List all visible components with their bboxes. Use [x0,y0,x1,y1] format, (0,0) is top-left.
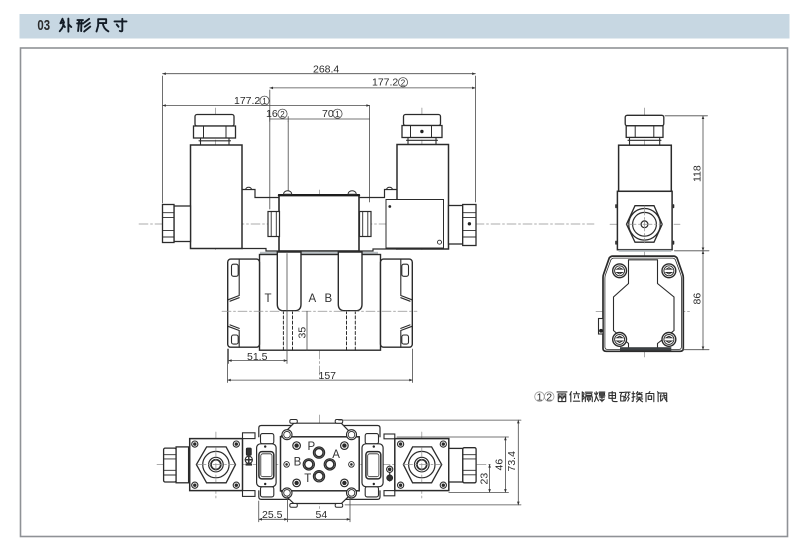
svg-text:T: T [265,293,272,305]
svg-text:A: A [309,293,317,305]
svg-text:2: 2 [401,78,406,87]
svg-text:1: 1 [537,391,543,403]
svg-text:2: 2 [280,110,285,119]
svg-text:157: 157 [319,370,337,382]
svg-text:268.4: 268.4 [313,64,339,76]
svg-text:03: 03 [37,17,50,34]
svg-text:177.2: 177.2 [372,77,398,89]
svg-text:70: 70 [322,108,334,120]
svg-text:51.5: 51.5 [247,351,268,363]
svg-text:B: B [325,293,333,305]
svg-text:P: P [308,441,316,453]
svg-text:73.4: 73.4 [506,451,518,472]
svg-text:118: 118 [692,165,704,182]
svg-text:1: 1 [262,97,267,106]
svg-text:T: T [304,473,311,485]
svg-text:86: 86 [692,293,704,305]
svg-text:2: 2 [546,391,552,403]
svg-text:177.2: 177.2 [234,95,260,107]
svg-text:B: B [294,457,302,469]
svg-text:16: 16 [266,108,278,120]
svg-text:1: 1 [335,110,340,119]
svg-text:23: 23 [479,473,491,485]
svg-text:25.5: 25.5 [262,509,283,521]
svg-text:35: 35 [297,327,309,339]
svg-text:54: 54 [316,509,328,521]
svg-text:A: A [332,449,340,461]
svg-text:46: 46 [493,459,505,471]
